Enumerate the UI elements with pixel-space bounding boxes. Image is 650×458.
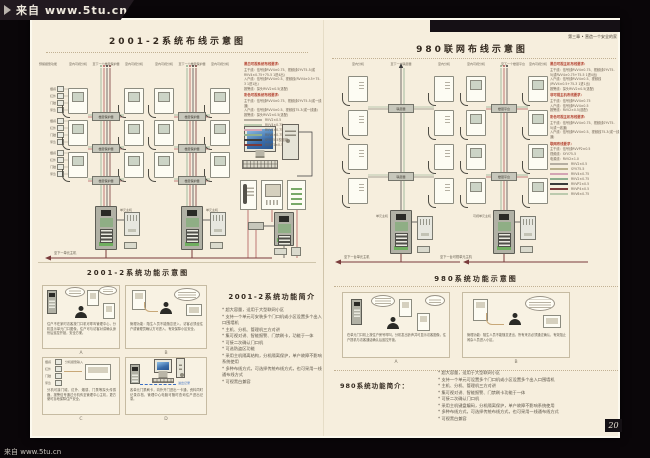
sensor-icon <box>57 150 64 156</box>
power-supply-icon <box>210 212 226 236</box>
connector-box <box>520 246 533 253</box>
sensor-label: 红外 <box>50 94 56 98</box>
page-gutter <box>323 20 324 436</box>
record-tag: 进出记录 <box>178 381 190 385</box>
catalog-scan: 来自 www.5tu.cn 来自 www.5tu.cn 第三章 • 营造一个安全… <box>0 0 650 458</box>
wire-label: RVV4×0.75 <box>265 128 283 133</box>
speech-cloud-icon <box>525 296 555 311</box>
sensor-cluster: 烟感 红外 门磁 紧急 <box>34 86 64 113</box>
legend-left: 黑白可视系统布线要求： 主干线：信号线RVV4×0.75、视频线SYV75-5(… <box>244 60 322 148</box>
door-station-icon <box>493 210 515 254</box>
person-icon <box>75 306 87 318</box>
wire-label: RVV2×0.5 <box>265 118 281 123</box>
door-station-icon <box>47 290 57 314</box>
indoor-unit-icon <box>124 152 144 178</box>
col-header: 室内分机 <box>341 62 375 66</box>
watermark-text: 来自 www.5tu.cn <box>16 2 128 18</box>
sensor-label: 紧急 <box>50 140 56 144</box>
col-header: 室内可视分机 <box>117 62 151 66</box>
function-panel-b2: 管理功能：陌生人员不能随意进出，所有来访必须通过确认，有效阻止闲杂人员进入小区。… <box>462 292 570 365</box>
legend-section-title: 非可视主机布线要求： <box>550 93 620 98</box>
bus-label: 至下一单元主机 <box>54 250 76 255</box>
panel-caption: 分机可接门磁、红外、烟感、门禁等探头传感器，报警信号通过分机传至管理中心主机，更… <box>47 388 116 402</box>
wire <box>64 371 82 372</box>
door-station-icon <box>95 206 117 250</box>
wire-tag: 分机报警输入 <box>65 360 83 364</box>
wire-swatch <box>550 193 568 195</box>
sensor-label: 烟感 <box>50 87 56 91</box>
panel-caption: 各单元门禁刷卡，向外开门进出一卡通，资料同时记录存档，管理中心电脑可随时查询住户… <box>130 388 203 402</box>
handset-cord <box>144 302 158 312</box>
wire-swatch <box>550 163 568 165</box>
indoor-unit-icon <box>154 88 174 114</box>
indoor-unit-icon <box>434 110 454 136</box>
indoor-unit-icon <box>348 178 368 204</box>
function-panel-d: 进出记录 各单元门禁刷卡，向外开门进出一卡通，资料同时记录存档，管理中心电脑可随… <box>125 357 207 422</box>
legend-line: 主干线：信号线RVV4×0.75、视频线SYV75-5(或一线通) <box>550 121 620 130</box>
col-header: 至下一个联层器 <box>376 62 426 66</box>
legend-section-title: 彩色可视系统布线要求： <box>244 93 322 98</box>
sensor-icon <box>57 118 64 124</box>
sensor-label: 门磁 <box>45 374 51 378</box>
feature-item: 可视黑白兼容 <box>222 379 322 386</box>
divider <box>332 58 616 59</box>
sensor-label: 红外 <box>50 158 56 162</box>
junction-box: 楼层保护器 <box>92 112 120 121</box>
panel-label: A <box>342 360 450 365</box>
dashed-link <box>140 384 176 385</box>
sensor-icon <box>57 157 64 163</box>
function-panel-a: 住户不在家时访客按门口机可呼叫管理中心，分机显示单元门口图像，住户可与访客对讲确… <box>42 285 120 356</box>
panel-label: B <box>462 360 570 365</box>
indoor-unit-icon <box>466 178 486 204</box>
person-icon <box>160 302 172 314</box>
intro-title: 2001-2系统功能简介 <box>222 292 322 302</box>
indoor-unit-icon <box>348 110 368 136</box>
management-monitor-icon <box>186 304 202 316</box>
indoor-unit-icon <box>68 88 88 114</box>
person-icon <box>387 317 399 329</box>
junction-box: 楼层保护器 <box>178 176 206 185</box>
junction-box: 楼层保护器 <box>92 144 120 153</box>
feature-item: 集可视对讲、智能报警、门禁刷卡，功能于一体 <box>222 333 322 340</box>
indoor-unit-icon <box>417 313 430 331</box>
sensor-icon <box>55 359 62 365</box>
junction-box: 楼层保护器 <box>92 176 120 185</box>
door-station-icon <box>181 206 203 250</box>
legend-line: 入户线：信号线RVV4×0.5、视频线75-3(或一线通) <box>550 130 620 139</box>
wire-label: RVVP2×0.5 <box>571 182 589 187</box>
legend-section-title: 黑白可视主机布线要求： <box>550 62 620 67</box>
function-panel-c: 烟感 红外 门磁 紧急 分机报警输入 分机可接门磁、红外、烟感、门禁等探头传感器… <box>42 357 120 422</box>
function-panel-a2: 在单元门口机上按住户房号呼叫，分机发出铃声并可显示访客图像，住户提机与访客通话确… <box>342 292 450 365</box>
page-number: 20 <box>605 419 622 432</box>
sensor-label: 门磁 <box>50 165 56 169</box>
indoor-unit-icon <box>434 76 454 102</box>
legend-line: 报警线：探头RVV2×0.5(选配) <box>244 87 322 92</box>
watermark-banner: 来自 www.5tu.cn <box>0 0 134 20</box>
switch-panel-icon <box>287 180 306 210</box>
panel-label: A <box>42 351 120 356</box>
sensor-icon <box>57 93 64 99</box>
wire-label: RVV4×0.75 <box>571 172 589 177</box>
indoor-unit-icon <box>434 178 454 204</box>
handset-cord <box>486 313 504 325</box>
chapter-title: 第三章 • 营造一个安全的家 <box>452 34 617 40</box>
indoor-unit-icon <box>68 120 88 146</box>
door-station-icon <box>130 364 140 384</box>
indoor-unit-icon <box>399 299 412 317</box>
panel-caption: 住户不在家时访客按门口机可呼叫管理中心，分机显示单元门口图像，住户可与访客对讲确… <box>47 322 116 336</box>
speech-cloud-icon <box>99 286 117 295</box>
panel-caption: 管理功能：陌生人员不能随意进入，访客必须经住户或管理员确认方可进入，有效保障小区… <box>130 322 203 331</box>
sensor-label: 门磁 <box>50 101 56 105</box>
legend-section-title: 黑白可视系统布线要求： <box>244 62 322 67</box>
panel-label: B <box>125 351 207 356</box>
sensor-label: 红外 <box>50 126 56 130</box>
col-header: 预留报警功能 <box>32 62 64 66</box>
feature-item: 支持一个单元可安装多个门口机或小区设置多个出入口围墙机 <box>222 314 322 327</box>
wire-label: SYV75-5 <box>571 167 584 172</box>
right-intro-title: 980系统功能简介： <box>340 380 436 390</box>
sensor-cluster: 烟感 红外 门磁 紧急 <box>34 150 64 177</box>
junction-box-small <box>248 222 264 230</box>
wire-label: RVV6×0.75 <box>571 192 589 197</box>
right-function-title: 980系统功能示意图 <box>334 274 618 284</box>
junction-box: 联层器 <box>388 104 414 113</box>
management-monitor-icon <box>261 180 283 210</box>
keyboard-icon <box>242 160 278 169</box>
indoor-unit-icon <box>528 178 548 204</box>
left-intro: 2001-2系统功能简介 超大容量，适用于大型联网小区 支持一个单元可安装多个门… <box>222 292 322 385</box>
indoor-unit-icon <box>528 76 548 102</box>
legend-section-title: 彩色可视主机布线要求： <box>550 115 620 120</box>
indoor-unit-icon <box>466 76 486 102</box>
wire-swatch <box>244 124 262 126</box>
right-wiring-title: 980联网布线示意图 <box>327 42 617 55</box>
col-header: 室内分机 <box>427 62 461 66</box>
door-station-icon <box>351 299 362 325</box>
connector-box <box>210 242 223 249</box>
wire-swatch <box>550 188 568 190</box>
sensor-icon <box>57 86 64 92</box>
sensor-icon <box>55 366 62 372</box>
wire-swatch <box>244 119 262 121</box>
wire-label: SYV75-5视频线 <box>265 138 288 143</box>
indoor-unit-icon <box>348 76 368 102</box>
indoor-unit-icon <box>68 152 88 178</box>
indoor-unit-icon <box>124 88 144 114</box>
catalog-spread: 第三章 • 营造一个安全的家 2001-2系统布线示意图 980联网布线示意图 … <box>30 18 620 438</box>
connector-box <box>274 248 287 255</box>
indoor-unit-icon <box>210 88 230 114</box>
person-icon <box>509 313 521 325</box>
legend-line: 入户线：信号线RVV4×0.5、视频线(RVV4×0.5+75-3 1进1出) <box>550 77 620 86</box>
sensor-icon <box>55 373 62 379</box>
legend-line: 报警线：RVV2×0.5(选配) <box>550 108 620 113</box>
junction-box: 楼层平台 <box>491 172 517 181</box>
wire-swatch <box>244 144 262 146</box>
connector-box <box>124 242 137 249</box>
feature-list: 超大容量，适用于大型联网小区 支持一个单元可设置多个门口机或小区设置多个出入口围… <box>438 370 620 422</box>
door-station-icon <box>390 210 412 254</box>
feature-item: 多种布线方式，可选择传统布线方式，也可采用一线通布线方式 <box>222 366 322 379</box>
wire-label: RVV2×0.5 <box>571 162 587 167</box>
watermark-bottom: 来自 www.5tu.cn <box>4 447 61 457</box>
connector-box <box>417 246 430 253</box>
sensor-label: 门磁 <box>50 133 56 137</box>
keyboard-icon <box>152 378 174 383</box>
legend-right: 黑白可视主机布线要求： 主干线：信号线RVV4×0.75、视频线SYV75-5(… <box>550 60 620 196</box>
legend-line: 报警线：探头RVV2×0.5(选配) <box>550 87 620 92</box>
sensor-label: 紧急 <box>50 108 56 112</box>
sensor-label: 烟感 <box>50 151 56 155</box>
wire-label: RVV2×0.75 <box>571 177 589 182</box>
function-panel-b: 管理功能：陌生人员不能随意进入，访客必须经住户或管理员确认方可进入，有效保障小区… <box>125 285 207 356</box>
indoor-unit-icon <box>154 152 174 178</box>
card-reader-icon <box>291 247 301 256</box>
indoor-unit-icon <box>528 144 548 170</box>
legend-line: 主干线：信号线RVV4×0.75、视频线SYV75-5(或RVV4×0.75+7… <box>550 68 620 77</box>
arrow-icon <box>4 5 11 15</box>
indoor-unit-icon <box>210 152 230 178</box>
sensor-label: 烟感 <box>50 119 56 123</box>
sensor-label: 紧急 <box>50 172 56 176</box>
indoor-unit-icon <box>87 290 99 306</box>
sensor-icon <box>57 125 64 131</box>
wire-swatch <box>550 168 568 170</box>
divider <box>38 262 316 263</box>
divider <box>334 286 618 287</box>
chapter-tab <box>430 20 620 32</box>
indoor-unit-icon <box>466 144 486 170</box>
indoor-unit-icon <box>528 110 548 136</box>
panel-label: C <box>42 417 120 422</box>
feature-item: 采用主机隔离结构，分机隔离保护，单户故障不影响系统使用 <box>222 353 322 366</box>
junction-box: 楼层保护器 <box>178 112 206 121</box>
wire-label: RVV6×0.75 <box>265 133 283 138</box>
wire-label: RVV4×0.75 <box>265 123 283 128</box>
indoor-unit-icon <box>466 110 486 136</box>
indoor-unit-icon <box>154 120 174 146</box>
bus-label: 至下一台单元主机 <box>344 254 370 259</box>
management-monitor-icon <box>543 315 561 328</box>
indoor-unit-icon <box>210 120 230 146</box>
sensor-icon <box>55 380 62 386</box>
panel-caption: 在单元门口机上按住户房号呼叫，分机发出铃声并可显示访客图像，住户提机与访客通话确… <box>347 333 446 342</box>
speech-cloud-icon <box>371 295 395 307</box>
legend-line: 主干线：信号线RVV4×0.75、视频线SYV75-5(或一线通) <box>244 99 322 108</box>
sensor-label: 烟感 <box>45 360 51 364</box>
legend-line: 入户线：信号线RVV4×0.5、视频线(RVV4×0.5+75-3 1进1出) <box>244 77 322 86</box>
door-station-label: 单元主机 <box>362 214 388 218</box>
sensor-cluster: 烟感 红外 门磁 紧急 <box>34 118 64 145</box>
junction-box: 楼层保护器 <box>178 144 206 153</box>
indoor-unit-icon <box>103 303 115 319</box>
panel-caption: 管理功能：陌生人员不能随意进出，所有来访必须通过确认，有效阻止闲杂人员进入小区。 <box>467 333 566 342</box>
speech-cloud-icon <box>65 287 85 297</box>
speech-cloud-icon <box>174 288 200 301</box>
power-supply-icon <box>520 216 536 240</box>
wire-swatch <box>550 173 568 175</box>
wire-swatch <box>244 139 262 141</box>
speech-cloud-icon <box>425 295 445 306</box>
col-header: 室内可视分机 <box>203 62 237 66</box>
wire-swatch <box>244 129 262 131</box>
indoor-unit-icon <box>124 120 144 146</box>
wire-swatch <box>550 183 568 185</box>
wire-swatch <box>550 178 568 180</box>
wire-label: RVVP4×0.5 <box>571 187 589 192</box>
door-station-label: 可视单元主机 <box>460 214 491 218</box>
legend-line: 主干线：信号线RVV4×0.75、视频线SYV75-5(或RVV4×0.75+7… <box>244 68 322 77</box>
power-supply-icon <box>417 216 433 240</box>
junction-box: 楼层平台 <box>491 104 517 113</box>
legend-section-title: 联网布线要求： <box>550 142 620 147</box>
power-supply-icon <box>124 212 140 236</box>
sensor-label: 红外 <box>45 367 51 371</box>
feature-item: 可视黑白兼容 <box>438 416 620 423</box>
computer-monitor-icon <box>154 359 172 373</box>
divider <box>46 52 308 53</box>
bus-label: 至下一台可视单元主机 <box>440 254 472 259</box>
feature-list: 超大容量，适用于大型联网小区 支持一个单元可安装多个门口机或小区设置多个出入口围… <box>222 307 322 385</box>
door-station-icon <box>274 212 294 246</box>
management-phone-icon <box>240 180 257 210</box>
panel-label: D <box>125 417 207 422</box>
left-wiring-title: 2001-2系统布线示意图 <box>32 34 323 47</box>
management-phone-icon <box>85 364 111 380</box>
right-intro: 超大容量，适用于大型联网小区 支持一个单元可设置多个门口机或小区设置多个出入口围… <box>438 370 620 422</box>
indoor-unit-icon <box>348 144 368 170</box>
sensor-label: 紧急 <box>45 381 51 385</box>
junction-box: 联层器 <box>388 172 414 181</box>
pc-tower-icon <box>176 358 185 378</box>
left-function-title: 2001-2系统功能示意图 <box>32 268 244 278</box>
indoor-unit-icon <box>434 144 454 170</box>
wire-label: RVVP2×0.5 <box>265 143 283 148</box>
wire-swatch <box>244 134 262 136</box>
